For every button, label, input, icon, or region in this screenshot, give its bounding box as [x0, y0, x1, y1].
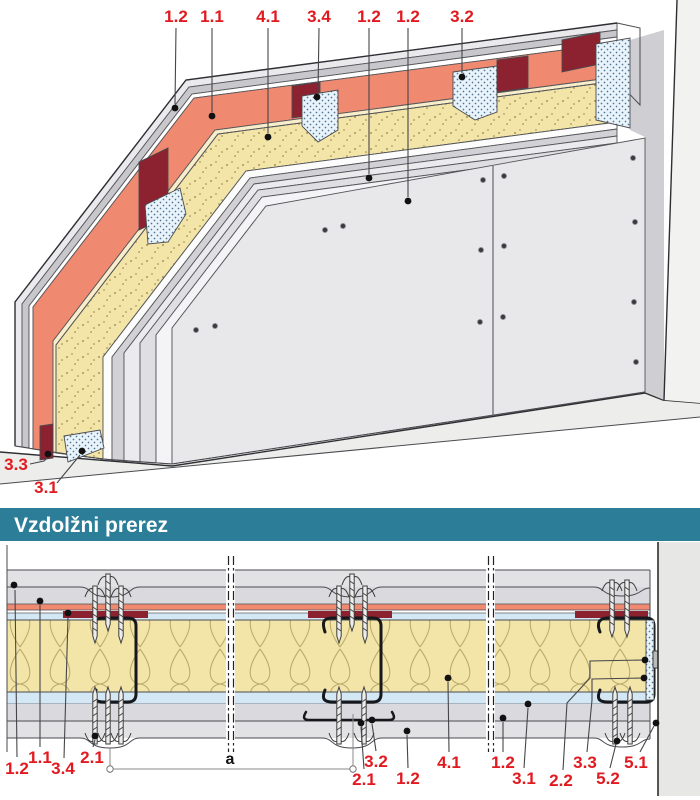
label-3.2: 3.2: [450, 7, 474, 26]
inner-board-bottom: [7, 704, 650, 721]
screw-icon: [631, 299, 636, 304]
label-3.1: 3.1: [34, 478, 58, 497]
label-2.1: 2.1: [352, 770, 376, 789]
label-3.4: 3.4: [307, 7, 331, 26]
construction-detail-page: 1.21.14.13.41.21.23.23.33.1 Vzdolžni pre…: [0, 0, 700, 800]
leader-dot: [653, 720, 660, 727]
inner-board-top: [7, 587, 650, 604]
label-3.3: 3.3: [573, 753, 597, 772]
leader-dot: [369, 717, 376, 724]
leader-line: [610, 744, 616, 768]
leader-dot: [525, 701, 532, 708]
screw-icon: [632, 219, 637, 224]
label-3.4: 3.4: [51, 759, 75, 778]
leader-dot: [642, 657, 649, 664]
drywall-system-diagram: 1.21.14.13.41.21.23.23.33.1 Vzdolžni pre…: [0, 0, 700, 800]
leader-dot: [37, 598, 44, 605]
leader-dot: [445, 675, 452, 682]
dimension-endpoint: [107, 766, 113, 772]
screw-icon: [630, 155, 635, 160]
leader-dot: [641, 675, 648, 682]
leader-dot: [358, 720, 365, 727]
label-1.2: 1.2: [5, 759, 29, 778]
screw-icon: [501, 243, 506, 248]
leader-dot: [65, 610, 72, 617]
adjacent-wall-section: [658, 542, 700, 796]
leader-dot: [92, 733, 99, 740]
leader-line: [407, 735, 408, 768]
leader-dot: [172, 105, 179, 112]
label-4.1: 4.1: [437, 753, 461, 772]
wall-assembly-3d: [15, 23, 645, 464]
longitudinal-section: a 1.21.13.42.13.22.14.11.21.23.12.23.35.…: [5, 542, 700, 796]
label-1.2: 1.2: [164, 7, 188, 26]
outer-board-top: [7, 570, 650, 587]
label-1.2: 1.2: [396, 769, 420, 788]
axonometric-view: 1.21.14.13.41.21.23.23.33.1: [0, 0, 700, 497]
label-2.2: 2.2: [549, 771, 573, 790]
leader-dot: [45, 451, 52, 458]
fire-board-line: [7, 604, 650, 610]
bracket-3-4: [497, 56, 528, 92]
label-4.1: 4.1: [256, 7, 280, 26]
stud-cut-3-2: [596, 38, 630, 128]
leader-dot: [11, 582, 18, 589]
screw-icon: [193, 327, 198, 332]
dimension-label: a: [226, 751, 235, 768]
label-5.2: 5.2: [596, 769, 620, 788]
screw-icon: [212, 323, 217, 328]
leader-dot: [405, 198, 412, 205]
leader-dot: [614, 738, 621, 745]
screw-icon: [501, 173, 506, 178]
screw-icon: [633, 359, 638, 364]
screw-icon: [477, 319, 482, 324]
leader-dot: [265, 134, 272, 141]
leader-dot: [404, 728, 411, 735]
leader-dot: [209, 113, 216, 120]
leader-dot: [459, 74, 466, 81]
label-3.2: 3.2: [364, 752, 388, 771]
section-title: Vzdolžni prerez: [14, 514, 168, 537]
label-1.2: 1.2: [396, 7, 420, 26]
label-1.1: 1.1: [28, 748, 52, 767]
label-5.1: 5.1: [624, 753, 648, 772]
label-2.1: 2.1: [80, 748, 104, 767]
label-3.3: 3.3: [4, 455, 28, 474]
screw-icon: [322, 227, 327, 232]
leader-dot: [366, 175, 373, 182]
screw-icon: [340, 223, 345, 228]
leader-dot: [314, 94, 321, 101]
label-1.2: 1.2: [357, 7, 381, 26]
label-1.1: 1.1: [200, 7, 224, 26]
leader-dot: [79, 448, 86, 455]
leader-dot: [500, 715, 507, 722]
outer-board-bottom: [7, 721, 650, 738]
screw-icon: [500, 314, 505, 319]
screw-icon: [480, 177, 485, 182]
screw-icon: [478, 247, 483, 252]
label-3.1: 3.1: [512, 769, 536, 788]
section-header: Vzdolžni prerez: [0, 508, 700, 541]
